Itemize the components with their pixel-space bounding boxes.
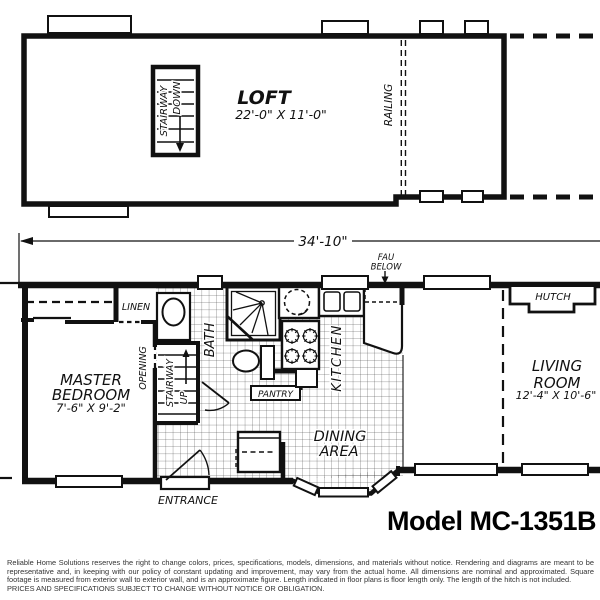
- refrigerator: [279, 287, 319, 318]
- pantry-label: PANTRY: [258, 390, 295, 400]
- model-title: Model MC-1351B: [387, 506, 596, 537]
- shower: [227, 287, 280, 340]
- master-closet: [21, 285, 116, 322]
- opening-label: OPENING: [138, 346, 149, 390]
- window: [465, 21, 488, 34]
- bath-vanity: [261, 346, 274, 379]
- overall-length-dim: 34'-10": [298, 234, 347, 250]
- dining-area-label: DINING: [314, 429, 367, 445]
- toilet: [233, 351, 259, 372]
- loft-stairway-label: DOWN: [172, 81, 183, 114]
- dining-area-label: AREA: [318, 444, 358, 460]
- disclaimer-caps: PRICES AND SPECIFICATIONS SUBJECT TO CHA…: [7, 585, 594, 594]
- kitchen-label: KITCHEN: [330, 324, 345, 392]
- bay-window: [319, 488, 368, 497]
- stairway-up-label: UP: [179, 391, 190, 404]
- window: [49, 206, 128, 217]
- living-room-dims: 12'-4" X 10'-6": [516, 389, 597, 402]
- loft-dims: 22'-0" X 11'-0": [235, 107, 327, 122]
- disclaimer: Reliable Home Solutions reserves the rig…: [7, 559, 594, 594]
- window: [322, 21, 368, 34]
- bath-label: BATH: [203, 322, 218, 357]
- linen-label: LINEN: [122, 302, 150, 313]
- kitchen-cabinet: [296, 369, 317, 387]
- window: [48, 16, 131, 33]
- living-room-label: LIVING: [532, 357, 582, 375]
- bath-sink: [157, 293, 190, 340]
- window: [420, 21, 443, 34]
- stairway-up-label: STAIRWAY: [165, 358, 176, 407]
- dining-table: [236, 432, 280, 472]
- railing-label: RAILING: [383, 84, 395, 127]
- master-bedroom-dims: 7'-6" X 9'-2": [56, 401, 126, 415]
- window: [415, 464, 497, 475]
- kitchen-counter: [364, 287, 402, 354]
- window: [56, 476, 122, 487]
- hutch-label: HUTCH: [535, 292, 571, 303]
- floorplan-page: LOFT 22'-0" X 11'-0" STAIRWAY DOWN RAILI…: [0, 0, 600, 600]
- window: [462, 191, 483, 202]
- window: [322, 276, 368, 289]
- fau-label: BELOW: [371, 263, 402, 273]
- entrance-label: ENTRANCE: [158, 494, 218, 507]
- loft-stairway-label: STAIRWAY: [159, 85, 170, 137]
- dimension-arrowhead: [20, 237, 33, 245]
- fau-label: FAU: [378, 253, 395, 263]
- window: [424, 276, 490, 289]
- window: [420, 191, 443, 202]
- window: [198, 276, 222, 289]
- stove: [282, 321, 319, 369]
- loft-label: LOFT: [237, 87, 293, 109]
- window: [522, 464, 588, 475]
- disclaimer-body: Reliable Home Solutions reserves the rig…: [7, 559, 594, 585]
- kitchen-sink: [319, 287, 364, 316]
